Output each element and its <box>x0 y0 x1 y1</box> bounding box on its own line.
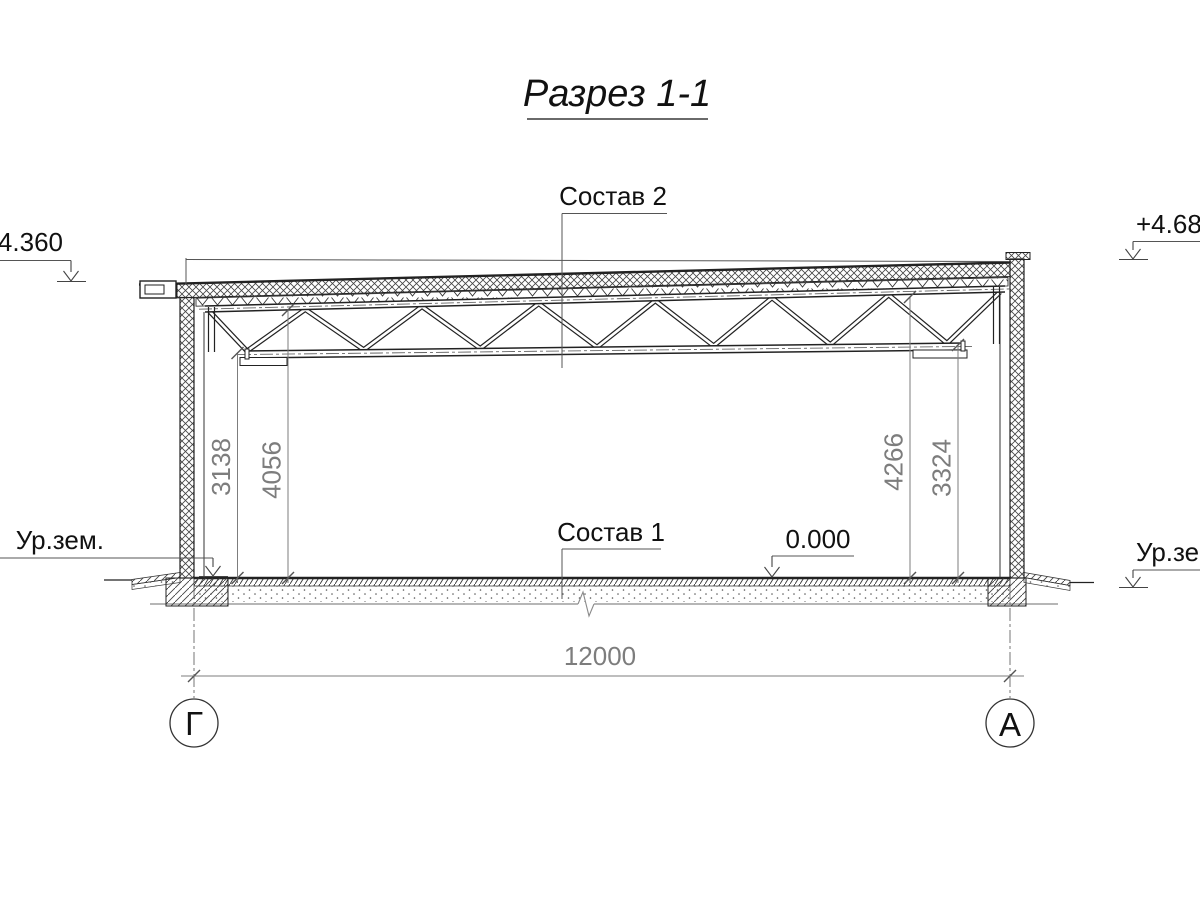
dim-text-right-inner: 4266 <box>879 433 909 491</box>
floor-slab <box>150 578 1058 616</box>
truss-diagonal <box>889 295 947 343</box>
elevation-left-label: +4.360 <box>0 227 63 257</box>
floor-bedding-layer <box>194 586 1010 602</box>
zero-level-label: 0.000 <box>785 524 850 554</box>
truss-diagonal <box>655 301 713 346</box>
bottom-chord-left-endplate <box>245 349 249 359</box>
truss-diagonal <box>364 307 422 350</box>
ground-level-left-label: Ур.зем. <box>16 525 104 555</box>
dim-text-span: 12000 <box>564 641 636 671</box>
right-wall <box>1010 259 1024 578</box>
axis-letter-left: Г <box>185 705 203 742</box>
ground-level-right-label: Ур.зем. <box>1136 537 1200 567</box>
truss-diagonal <box>305 309 363 349</box>
truss-diagonal <box>597 301 655 347</box>
bottom-chord-right-endplate <box>961 341 965 351</box>
composition-callouts: Состав 2 Состав 1 <box>557 181 667 599</box>
elevation-arrow-icon <box>206 566 221 576</box>
truss-diagonal <box>480 304 538 349</box>
eaves-gutter-inner <box>145 285 164 294</box>
foundation-right <box>988 578 1026 606</box>
right-parapet-cap <box>1006 253 1030 260</box>
elevation-arrow-icon <box>64 271 79 281</box>
truss-diagonal <box>830 295 888 345</box>
section-drawing-sheet: Разрез 1-1 <box>0 0 1200 900</box>
truss-diagonal <box>539 304 597 347</box>
truss-diagonal <box>422 307 480 349</box>
roof-composition-label: Состав 2 <box>559 181 667 211</box>
dim-text-left-inner: 3138 <box>206 438 236 496</box>
elevation-reference-line <box>186 260 1008 262</box>
truss-diagonal <box>772 298 830 345</box>
drawing-title: Разрез 1-1 <box>523 73 711 115</box>
elevation-arrow-icon <box>1126 249 1141 259</box>
elevation-arrow-icon <box>1126 577 1141 587</box>
axis-letter-right: А <box>999 706 1021 743</box>
dim-text-right-outer: 3324 <box>927 439 957 497</box>
truss-diagonal <box>947 292 1000 343</box>
elevation-right-label: +4.680 <box>1136 209 1200 239</box>
truss-diagonal <box>247 309 305 350</box>
dim-text-left-outer: 4056 <box>257 441 287 499</box>
truss-diagonal <box>210 312 247 351</box>
span-dimension: 12000 Г А <box>170 586 1034 747</box>
floor-composition-label: Состав 1 <box>557 517 665 547</box>
right-seat-plate <box>913 350 967 358</box>
left-wall <box>180 298 194 579</box>
elevation-arrow-icon <box>765 567 780 577</box>
truss-diagonal <box>714 298 772 346</box>
section-drawing: Разрез 1-1 <box>0 0 1200 900</box>
